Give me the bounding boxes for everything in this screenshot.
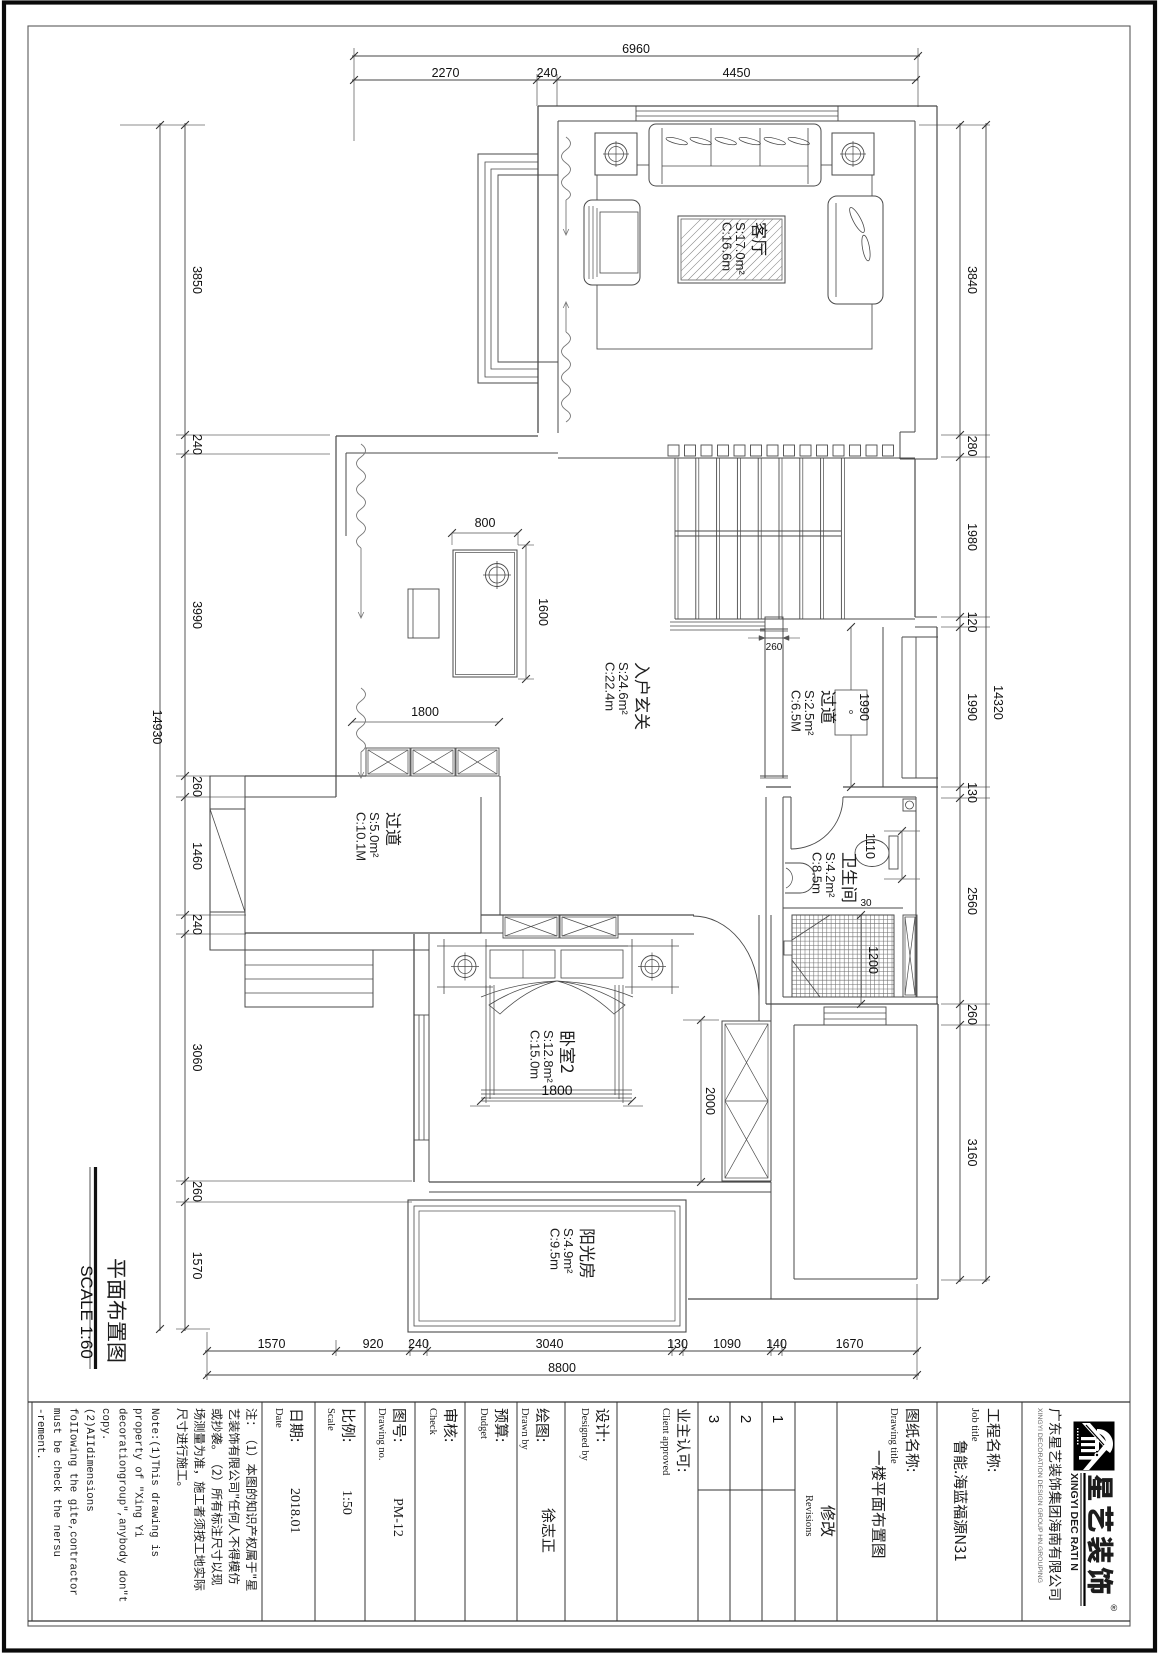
svg-text:240: 240 [537, 66, 558, 80]
svg-text:1670: 1670 [836, 1337, 864, 1351]
svg-text:3850: 3850 [190, 266, 204, 294]
svg-text:Drawing title: Drawing title [888, 1408, 899, 1464]
svg-text:1990: 1990 [965, 693, 979, 721]
svg-text:30: 30 [860, 898, 872, 909]
svg-text:Job title: Job title [969, 1408, 980, 1442]
svg-text:800: 800 [475, 516, 496, 530]
svg-text:1800: 1800 [411, 705, 439, 719]
svg-text:Drawing no.: Drawing no. [376, 1408, 387, 1461]
svg-text:copy.: copy. [99, 1408, 111, 1440]
svg-text:3040: 3040 [536, 1337, 564, 1351]
svg-text:1990: 1990 [857, 693, 871, 721]
svg-text:1: 1 [769, 1415, 786, 1423]
svg-text:Client approved: Client approved [660, 1408, 671, 1476]
svg-text:240: 240 [408, 1337, 429, 1351]
svg-text:Drawn by: Drawn by [519, 1408, 530, 1450]
svg-text:1:50: 1:50 [339, 1490, 354, 1515]
svg-text:2270: 2270 [432, 66, 460, 80]
svg-text:260: 260 [190, 1181, 204, 1202]
svg-text:PM-12: PM-12 [390, 1498, 405, 1537]
svg-text:280: 280 [965, 436, 979, 457]
svg-text:240: 240 [190, 914, 204, 935]
svg-text:Designed by: Designed by [579, 1408, 590, 1462]
svg-text:Check: Check [427, 1408, 438, 1436]
svg-text:8800: 8800 [548, 1361, 576, 1375]
svg-text:C:16.6m: C:16.6m [720, 222, 735, 271]
svg-text:C:10.1M: C:10.1M [354, 812, 369, 861]
svg-text:2: 2 [737, 1415, 754, 1423]
svg-text:Note:(1)This drawing is: Note:(1)This drawing is [148, 1408, 160, 1557]
svg-text:130: 130 [667, 1337, 688, 1351]
svg-text:must be check the nersu: must be check the nersu [50, 1408, 62, 1557]
svg-text:3060: 3060 [190, 1044, 204, 1072]
svg-text:2000: 2000 [703, 1087, 717, 1115]
svg-text:4450: 4450 [723, 66, 751, 80]
svg-text:1800: 1800 [541, 1082, 572, 1098]
svg-text:260: 260 [965, 1004, 979, 1025]
svg-text:1110: 1110 [863, 833, 877, 859]
svg-text:decorationgroup",anybody don"t: decorationgroup",anybody don"t [115, 1408, 127, 1602]
svg-text:130: 130 [965, 782, 979, 803]
svg-text:XINGYI DECORATION DESIGN GROUP: XINGYI DECORATION DESIGN GROUP HN.GROUPI… [1036, 1408, 1043, 1583]
svg-text:920: 920 [363, 1337, 384, 1351]
svg-text:C:8.5m: C:8.5m [810, 852, 825, 894]
svg-text:-rement.: -rement. [34, 1408, 46, 1460]
svg-text:3990: 3990 [190, 601, 204, 629]
svg-text:1460: 1460 [190, 842, 204, 870]
svg-text:property of "Xing Yi: property of "Xing Yi [132, 1408, 144, 1538]
svg-text:Scale: Scale [325, 1408, 336, 1431]
svg-text:Dudget: Dudget [478, 1408, 489, 1439]
svg-text:260: 260 [190, 776, 204, 797]
svg-text:SCALE 1:60: SCALE 1:60 [77, 1265, 96, 1359]
svg-text:1090: 1090 [713, 1337, 741, 1351]
svg-text:240: 240 [190, 434, 204, 455]
svg-text:(2)AIIdimensions: (2)AIIdimensions [83, 1408, 95, 1512]
svg-text:1200: 1200 [866, 946, 880, 974]
svg-text:XINGYI DEC RATI N: XINGYI DEC RATI N [1068, 1473, 1080, 1571]
svg-text:6960: 6960 [622, 42, 650, 56]
svg-text:C:6.5M: C:6.5M [789, 690, 804, 732]
svg-text:1570: 1570 [258, 1337, 286, 1351]
svg-text:1980: 1980 [965, 523, 979, 551]
svg-text:3: 3 [705, 1415, 722, 1423]
svg-text:3160: 3160 [965, 1139, 979, 1167]
svg-text:14320: 14320 [991, 685, 1005, 720]
svg-text:foIIowing the gite,contractor: foIIowing the gite,contractor [67, 1408, 79, 1596]
svg-text:C:9.5m: C:9.5m [548, 1228, 563, 1270]
svg-text:120: 120 [965, 612, 979, 633]
svg-text:®: ® [1111, 1603, 1118, 1613]
svg-text:Revisions: Revisions [803, 1495, 814, 1536]
svg-text:1600: 1600 [536, 598, 550, 626]
svg-text:3840: 3840 [965, 266, 979, 294]
svg-text:140: 140 [766, 1337, 787, 1351]
svg-text:14930: 14930 [150, 710, 164, 745]
svg-text:2560: 2560 [965, 887, 979, 915]
svg-text:260: 260 [766, 642, 783, 653]
svg-text:Date: Date [273, 1408, 284, 1428]
svg-text:2018.01: 2018.01 [287, 1488, 302, 1534]
svg-text:C:15.0m: C:15.0m [528, 1030, 543, 1079]
svg-text:1570: 1570 [190, 1252, 204, 1280]
svg-text:C:22.4m: C:22.4m [603, 662, 618, 711]
